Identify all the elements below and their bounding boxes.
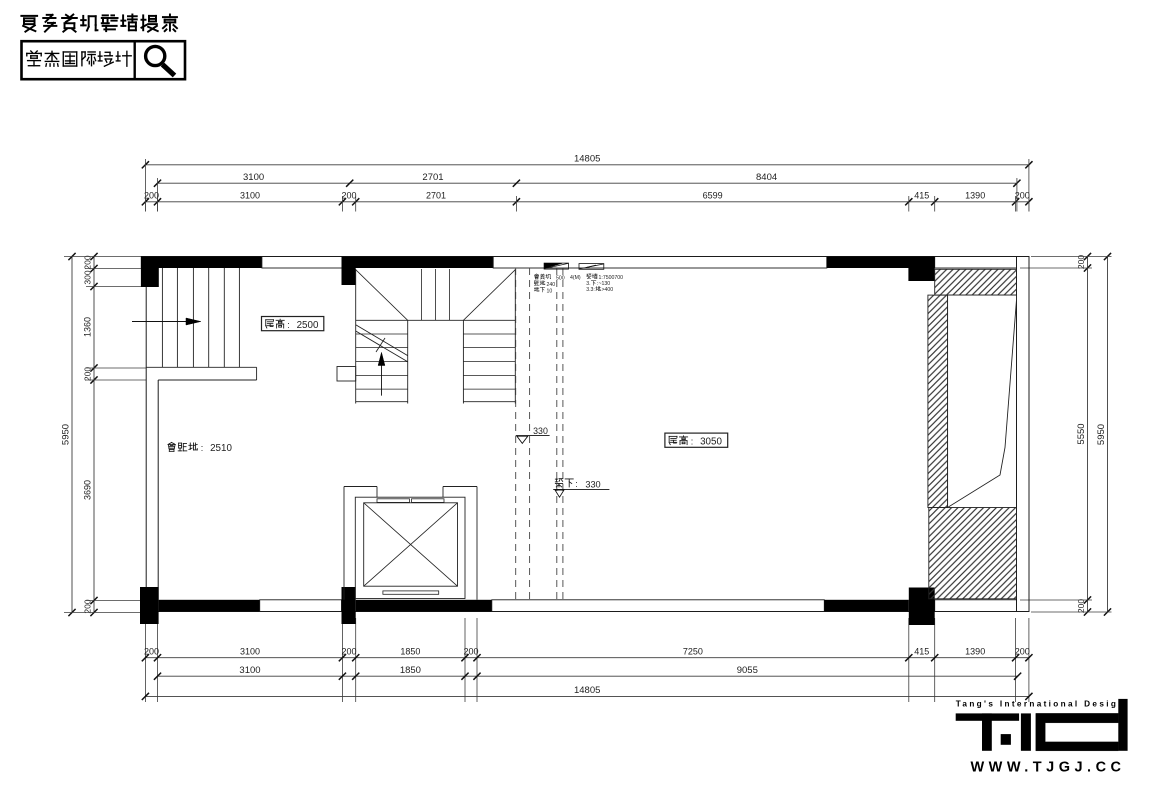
svg-text:3690: 3690 bbox=[83, 480, 93, 500]
svg-text:1850: 1850 bbox=[400, 647, 420, 657]
svg-text:3050: 3050 bbox=[700, 437, 722, 448]
svg-text:2701: 2701 bbox=[422, 172, 443, 183]
svg-text:14805: 14805 bbox=[574, 685, 600, 696]
svg-text:200: 200 bbox=[341, 647, 356, 657]
svg-text:500: 500 bbox=[556, 276, 565, 282]
svg-text:8404: 8404 bbox=[756, 172, 777, 183]
svg-text:6599: 6599 bbox=[703, 191, 723, 201]
svg-text:WWW.TJGJ.CC: WWW.TJGJ.CC bbox=[971, 759, 1126, 775]
svg-text:330: 330 bbox=[533, 426, 548, 436]
svg-text:300: 300 bbox=[83, 270, 93, 284]
svg-text:2500: 2500 bbox=[297, 320, 319, 331]
svg-text:330: 330 bbox=[585, 479, 600, 489]
svg-text:4(M): 4(M) bbox=[570, 275, 581, 281]
svg-text::: : bbox=[575, 479, 577, 489]
svg-text:7250: 7250 bbox=[683, 647, 703, 657]
svg-text:3100: 3100 bbox=[239, 665, 260, 676]
svg-text:3100: 3100 bbox=[243, 172, 264, 183]
svg-text:200: 200 bbox=[463, 647, 478, 657]
svg-text:200: 200 bbox=[144, 647, 159, 657]
svg-text:2701: 2701 bbox=[426, 191, 446, 201]
svg-text:2510: 2510 bbox=[210, 443, 232, 454]
svg-text:Tang's International Design: Tang's International Design bbox=[956, 700, 1126, 709]
svg-text:>400: >400 bbox=[602, 287, 614, 293]
svg-text:415: 415 bbox=[914, 647, 929, 657]
svg-text:200: 200 bbox=[1015, 647, 1030, 657]
svg-text:9055: 9055 bbox=[737, 665, 758, 676]
svg-text:5950: 5950 bbox=[1096, 424, 1107, 445]
svg-text:14805: 14805 bbox=[574, 154, 600, 165]
svg-text::: : bbox=[691, 436, 694, 446]
svg-text:200: 200 bbox=[1076, 599, 1086, 613]
svg-text::: : bbox=[287, 320, 290, 330]
svg-text:1360: 1360 bbox=[83, 317, 93, 337]
svg-text:240: 240 bbox=[547, 282, 556, 288]
svg-text:200: 200 bbox=[144, 191, 159, 201]
svg-text:5550: 5550 bbox=[1076, 423, 1087, 444]
svg-text:200: 200 bbox=[83, 367, 93, 381]
svg-text:3100: 3100 bbox=[240, 191, 260, 201]
svg-text:415: 415 bbox=[914, 191, 929, 201]
svg-text:5950: 5950 bbox=[61, 424, 72, 445]
svg-text:1850: 1850 bbox=[400, 665, 421, 676]
svg-text:3.3:: 3.3: bbox=[586, 287, 595, 293]
svg-text:200: 200 bbox=[83, 255, 93, 269]
svg-text::: : bbox=[201, 443, 204, 453]
svg-text:3100: 3100 bbox=[240, 647, 260, 657]
svg-text:200: 200 bbox=[341, 191, 356, 201]
svg-text:200: 200 bbox=[83, 599, 93, 613]
svg-text:1390: 1390 bbox=[965, 647, 985, 657]
svg-text:1390: 1390 bbox=[965, 191, 985, 201]
svg-text:10: 10 bbox=[547, 289, 553, 295]
